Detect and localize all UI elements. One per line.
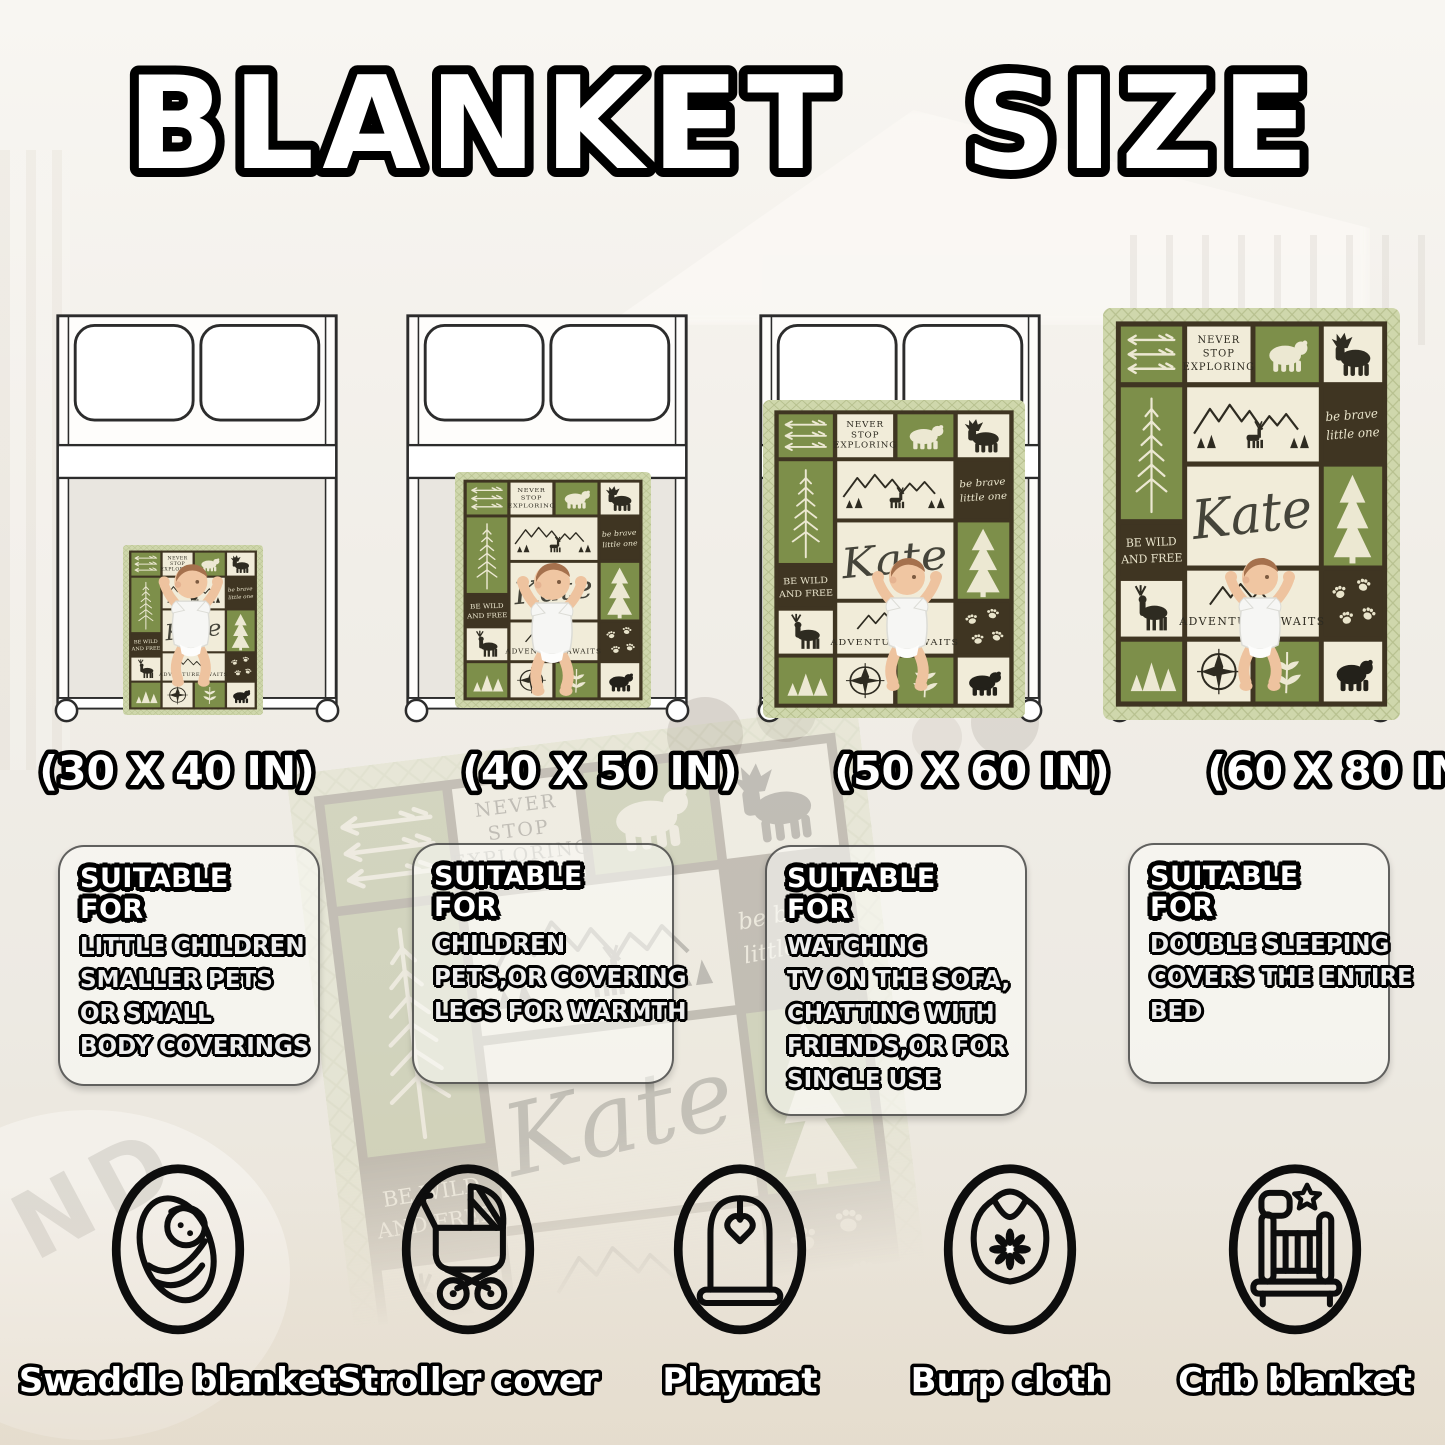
suitability-line: LITTLE CHILDREN: [80, 931, 302, 964]
burp-cloth-icon: [935, 1158, 1085, 1346]
blanket-size-infographic: NEVER STOP EXPLORING: [0, 0, 1445, 1445]
suitability-line: DOUBLE SLEEPING: [1150, 929, 1372, 962]
suitability-header: SUITABLE FOR: [434, 861, 656, 923]
size-label-60x80: (60 X 80 IN): [1175, 742, 1445, 800]
baby-image: [143, 557, 235, 695]
bed-column-30x40: [25, 305, 370, 737]
suitability-box-50x60: SUITABLE FOR WATCHING TV ON THE SOFA, CH…: [765, 845, 1027, 1116]
svg-text:Burp cloth: Burp cloth: [911, 1361, 1110, 1401]
suitability-line: COVERS THE ENTIRE: [1150, 962, 1372, 995]
svg-text:Swaddle blanket: Swaddle blanket: [19, 1361, 337, 1401]
suitability-line: SINGLE USE: [787, 1064, 1009, 1097]
suitability-line: WATCHING: [787, 931, 1009, 964]
suitability-header: SUITABLE FOR: [787, 863, 1009, 925]
baby-image: [855, 550, 955, 700]
page-title: BLANKET SIZE: [0, 28, 1445, 223]
stroller-cover-icon: [393, 1158, 543, 1346]
star-motif: [1294, 1185, 1320, 1208]
bed-column-60x80: [1078, 305, 1423, 737]
suitability-line: CHILDREN: [434, 929, 656, 962]
use-item-swaddle: Swaddle blanket: [18, 1158, 338, 1406]
bed-column-50x60: [728, 305, 1073, 737]
suitability-box-40x50: SUITABLE FOR CHILDREN PETS,OR COVERING L…: [412, 843, 674, 1084]
suitability-box-30x40: SUITABLE FOR LITTLE CHILDREN SMALLER PET…: [58, 845, 320, 1086]
suitability-line: FRIENDS,OR FOR: [787, 1031, 1009, 1064]
use-label: Crib blanket: [1135, 1352, 1445, 1406]
size-label-30x40: (30 X 40 IN): [7, 742, 347, 800]
svg-text:BLANKET SIZE: BLANKET SIZE: [127, 50, 1317, 199]
baby-image: [1208, 550, 1308, 700]
bed-column-40x50: [375, 305, 720, 737]
svg-text:(50 X 60 IN): (50 X 60 IN): [834, 747, 1110, 795]
suitability-line: BODY COVERINGS: [80, 1031, 302, 1064]
svg-text:(30 X 40 IN): (30 X 40 IN): [39, 747, 315, 795]
use-label: Swaddle blanket: [18, 1352, 338, 1406]
size-label-50x60: (50 X 60 IN): [802, 742, 1142, 800]
svg-text:Crib blanket: Crib blanket: [1178, 1361, 1412, 1401]
suitability-header: SUITABLE FOR: [1150, 861, 1372, 923]
use-label: Burp cloth: [850, 1352, 1170, 1406]
use-item-burp-cloth: Burp cloth: [850, 1158, 1170, 1406]
svg-text:Playmat: Playmat: [662, 1361, 817, 1401]
svg-text:(60 X 80 IN): (60 X 80 IN): [1207, 747, 1445, 795]
suitability-box-60x80: SUITABLE FOR DOUBLE SLEEPING COVERS THE …: [1128, 843, 1390, 1084]
suitability-line: PETS,OR COVERING: [434, 962, 656, 995]
baby-image: [500, 555, 600, 705]
use-item-crib: Crib blanket: [1135, 1158, 1445, 1406]
crib-blanket-icon: [1220, 1158, 1370, 1346]
suitability-header: SUITABLE FOR: [80, 863, 302, 925]
suitability-line: TV ON THE SOFA,: [787, 964, 1009, 997]
playmat-icon: [665, 1158, 815, 1346]
suitability-line: CHATTING WITH: [787, 998, 1009, 1031]
suitability-line: LEGS FOR WARMTH: [434, 996, 656, 1029]
svg-text:(40 X 50 IN): (40 X 50 IN): [462, 747, 738, 795]
size-label-40x50: (40 X 50 IN): [430, 742, 770, 800]
swaddle-blanket-icon: [103, 1158, 253, 1346]
suitability-line: BED: [1150, 996, 1372, 1029]
suitability-line: OR SMALL: [80, 998, 302, 1031]
suitability-line: SMALLER PETS: [80, 964, 302, 997]
svg-text:Stroller cover: Stroller cover: [337, 1361, 599, 1401]
